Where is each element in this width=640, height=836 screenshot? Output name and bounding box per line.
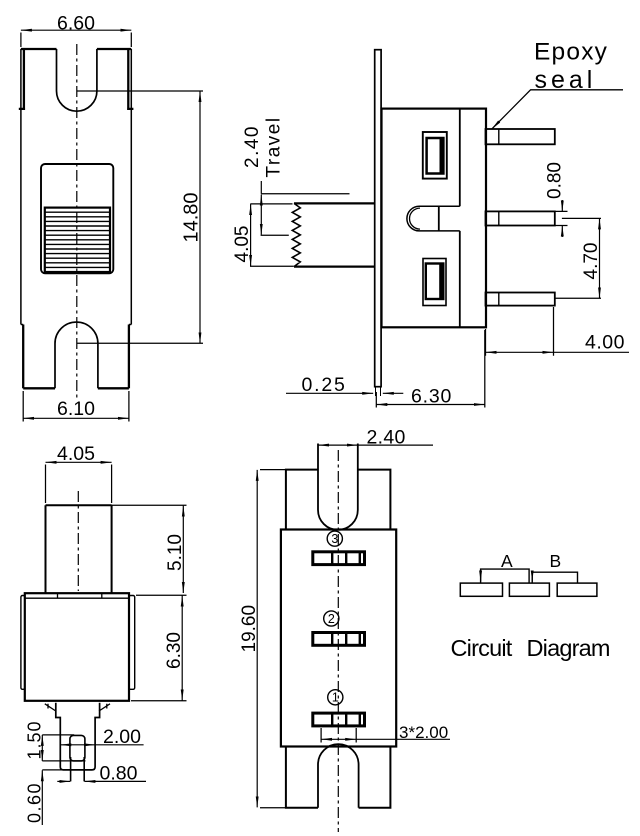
- svg-text:0.25: 0.25: [302, 374, 347, 396]
- svg-text:14.80: 14.80: [181, 192, 203, 242]
- svg-text:Epoxy: Epoxy: [534, 39, 608, 66]
- svg-text:B: B: [550, 551, 562, 571]
- svg-text:4.00: 4.00: [585, 332, 625, 354]
- svg-text:1: 1: [332, 691, 339, 705]
- svg-text:0.80: 0.80: [100, 762, 138, 784]
- svg-text:4.70: 4.70: [581, 243, 602, 280]
- svg-text:Travel: Travel: [264, 116, 285, 177]
- svg-text:2.40: 2.40: [242, 125, 263, 168]
- svg-text:3: 3: [331, 532, 338, 546]
- svg-text:0.80: 0.80: [545, 162, 566, 199]
- svg-text:4.05: 4.05: [57, 443, 95, 465]
- svg-text:6.30: 6.30: [411, 386, 452, 408]
- svg-text:A: A: [501, 551, 513, 571]
- svg-text:6.10: 6.10: [57, 398, 95, 420]
- svg-text:19.60: 19.60: [239, 605, 260, 653]
- svg-text:Circuit: Circuit: [451, 635, 513, 661]
- svg-text:5.10: 5.10: [165, 534, 186, 571]
- svg-text:Diagram: Diagram: [527, 635, 610, 661]
- svg-text:1.50: 1.50: [25, 720, 45, 759]
- svg-text:6.30: 6.30: [164, 632, 185, 669]
- svg-text:2: 2: [328, 612, 335, 626]
- svg-text:0.60: 0.60: [25, 782, 45, 823]
- svg-text:3*2.00: 3*2.00: [399, 723, 448, 742]
- svg-text:6.60: 6.60: [57, 13, 95, 35]
- svg-text:4.05: 4.05: [232, 226, 253, 263]
- svg-text:2.00: 2.00: [103, 726, 141, 748]
